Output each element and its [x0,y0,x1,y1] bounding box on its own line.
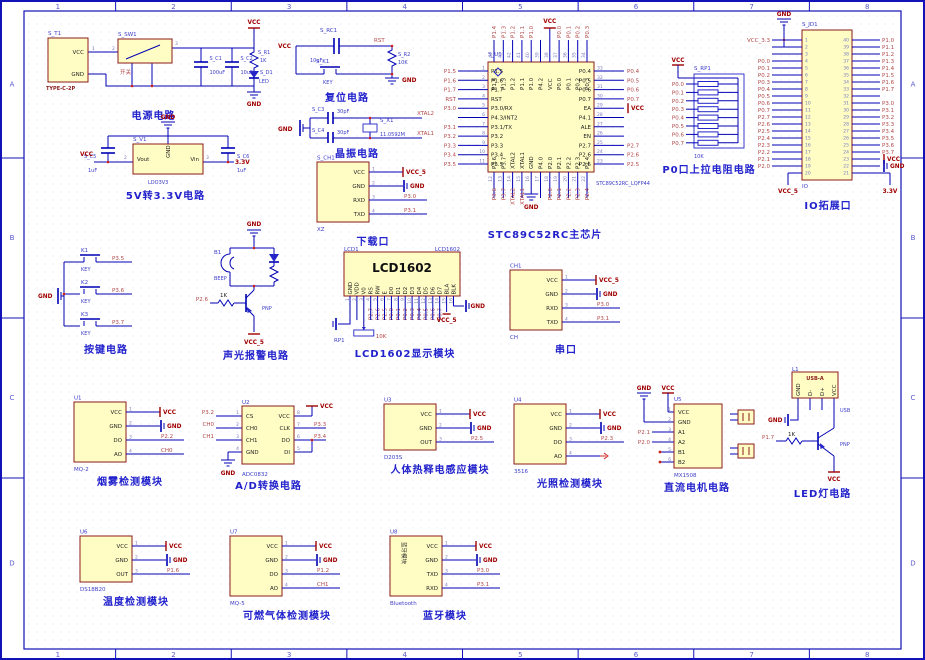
power-net-label: VCC [479,544,492,550]
pin-number: 27 [597,121,603,127]
net-label: P2.7 [758,115,771,121]
net-label: P1.5 [882,73,895,79]
pin-name: EN [583,134,591,140]
pin-name: XTAL2 [511,152,517,169]
net-label: P2.7 [627,143,640,149]
net-label: P2.1 [638,430,650,436]
pin-name: GND [549,426,562,432]
pin-number: 19 [553,176,559,182]
temp-svg: U6DS18B20VCC1VCCGND2GNDOUT3P1.6 [66,528,206,594]
module-pir-sensor: U3D203SVCC1VCCGND2GNDOUT3P2.5 人体热释电感应模块 [370,396,510,476]
net-label: CH0 [203,422,215,428]
pin-number: 4 [236,446,239,452]
designator: U3 [384,398,392,404]
net-label: P2.0 [548,188,554,201]
pin-number: 14 [435,298,441,304]
net-label: P0.2 [403,308,409,320]
pin-name: B1 [678,450,685,456]
pin-number: 23 [597,159,603,165]
gnd-label: GND [323,558,338,564]
pin-name: EA [584,106,591,112]
designator: K2 [81,280,88,286]
zone-label: 6 [634,651,639,659]
net-label: P1.1 [882,45,894,51]
pin-number: 1 [445,541,448,547]
net-label: P2.0 [638,440,651,446]
lcd-caption: LCD1602显示模块 [326,345,484,360]
vcc-label: VCC [662,386,675,392]
pin-name: GND [348,282,354,295]
net-label: P0.0 [389,308,395,321]
zone-label: 2 [171,3,175,11]
pin-number: 3 [565,303,568,309]
pin-name: DO [113,438,122,444]
power-net-label: VCC_5 [778,189,798,195]
pin-name: RXD [546,306,558,312]
gnd-label: GND [768,418,783,424]
crystal-body [363,124,377,132]
pin-number: 13 [805,122,811,128]
pin-name: RXD [353,198,365,204]
pin-name: GND [545,292,558,298]
module-bluetooth: U8Bluetooth蓝牙模块VCC1VCCGND2GNDTXD3P3.0RXD… [376,528,514,622]
pin-name: GND [115,558,128,564]
pin-name: D6 [431,286,437,294]
pin-name: P4.0 [539,156,545,169]
module-inner-label: 蓝牙模块 [400,542,408,565]
pin-number: 17 [805,150,811,156]
zone-label: 3 [287,3,291,11]
value-label: KEY [81,299,91,305]
net-label: P1.3 [882,59,895,65]
designator: S_K1 [316,59,329,65]
gas-svg: U7MQ-5VCC1VCCGND2GNDDO3P1.2AO4CH1 [216,528,356,608]
designator: L1 [792,367,799,373]
pin-number: 2 [445,555,448,561]
module-keys: GND K1 KEY P3.5 K2 KEY P3.6 K3 KEY P3.7 … [36,246,176,356]
pin-number: 39 [535,52,541,58]
net-label: P3.6 [882,143,895,149]
net-label: P3.0 [597,302,610,308]
pin-name: TXD [353,212,365,218]
net-label: P0.4 [627,69,640,75]
value-label: 1uF [88,168,97,174]
pin-number: 2 [124,155,127,161]
pin-number: 20 [805,171,811,177]
net-label: P2.5 [627,162,640,168]
pir-caption: 人体热释电感应模块 [370,461,510,476]
gnd-label: GND [402,78,417,84]
vcc-label: VCC [80,152,93,158]
net-label: XTAL1 [417,131,434,137]
pin-number: 3 [482,84,485,90]
resistor-body [698,115,718,120]
led-caption: LED灯电路 [760,485,885,500]
pin-name: AO [554,454,563,460]
motor-caption: 直流电机电路 [626,479,768,494]
pin-number: 11 [479,159,485,165]
pin-name: XTAL1 [520,152,526,169]
pin-number: 22 [581,176,587,182]
pin-name: DO [553,440,562,446]
designator: U2 [242,400,250,406]
module-adc: U2 ADC0832 CS CH0 CH1 GND 1 2 3 4 P3.2 C… [200,396,337,492]
pin-name: GND [419,426,432,432]
gnd-label: GND [173,558,188,564]
pin-number: 2 [112,46,115,52]
pin-number: 3 [175,41,178,47]
pin-name: P1.2 [511,78,517,90]
pin-number: 6 [805,73,808,79]
pin-number: 3 [206,155,209,161]
serial-svg: CH1CHVCC1VCC_5GND2GNDRXD3P3.0TXD4P3.1 [496,262,636,342]
designator: S_RC1 [320,28,337,34]
pin-number: 1 [129,407,132,413]
pin-name: P2.4 [585,156,591,169]
pin-number: 25 [597,140,603,146]
module-led-light: L1 USB-A GND D- D+ VCC USB GND 1K P1.7 P… [760,366,885,500]
pin-name: D5 [424,286,430,294]
designator: S_SW1 [118,32,137,38]
net-label: P0.1 [758,66,770,72]
pin-name: P2.1 [557,157,563,169]
net-label: P2.4 [758,136,771,142]
net-label: CH1 [203,434,214,440]
pin-number: 3 [668,427,671,433]
pin-name: P3.2 [491,134,503,140]
pin-number: 22 [843,164,849,170]
net-label: P0.5 [627,78,640,84]
value-label: 10uF [241,70,254,76]
pin-name: P2.7 [579,143,592,149]
pin-number: 7 [805,80,808,86]
net-label: P2.2 [758,150,770,156]
pin-number: 2 [439,423,442,429]
pin-name: VCC [279,414,291,420]
pin-number: 14 [507,176,513,182]
pin-number: 8 [297,410,300,416]
designator: S_R2 [398,52,410,58]
pin-name: AO [270,586,279,592]
pin-name: BLA [444,284,450,295]
pin-number: 15 [516,176,522,182]
value-label: 10K [694,154,704,160]
pin-number: 18 [805,157,811,163]
pin-number: 35 [843,73,849,79]
temp-caption: 温度检测模块 [66,593,206,608]
pin-name: GND [678,420,691,426]
power-net-label: GND [524,205,539,211]
net-label: P2.4 [585,188,591,201]
pin-name: P4.1 [579,116,591,122]
pin-name: P0.0 [557,77,563,90]
module-lcd1602: LCD1602LCD1LCD1602GND1VDD2V03RS4P2.7RW5P… [326,248,484,360]
designator: U4 [514,398,522,404]
pin-number: 2 [129,421,132,427]
pin-name: P3.7 [501,156,507,169]
pin-number: 4 [482,93,485,99]
net-label: CH1 [317,582,328,588]
net-label: P1.1 [520,26,526,38]
net-label: P0.4 [758,87,771,93]
pin-number: 3 [372,195,375,201]
net-label: P1.2 [511,26,517,38]
part-number: IO [802,184,809,190]
net-label: P3.6 [112,288,125,294]
pin-name: D- [808,390,814,396]
net-label: 10K [376,334,387,340]
pin-number: 24 [843,150,849,156]
pin-name: Vin [190,157,199,163]
designator: S_R1 [258,50,270,56]
alarm-caption: 声光报警电路 [190,347,322,362]
pin-name: VCC [832,384,838,396]
alarm-svg: GND B1 BEEP 1K P2.6 PNP VCC_5 [190,220,320,348]
net-label: P2.1 [758,157,770,163]
net-label: P2.6 [196,297,209,303]
net-label: P3.4 [882,129,895,135]
keys-svg: GND K1 KEY P3.5 K2 KEY P3.6 K3 KEY P3.7 [36,246,176,342]
net-label: P3.3 [314,422,327,428]
pin-number: 41 [516,52,522,58]
download-svg: S_CH1XZVCC1VCC_5GND2GNDRXD3P3.0TXD4P3.1 [303,154,443,234]
pin-number: 3 [359,298,365,301]
net-label: P2.3 [758,143,771,149]
net-label: P3.5 [112,256,125,262]
pin-name: RXD [426,586,438,592]
pin-number: 3 [805,52,808,58]
pin-number: 37 [553,52,559,58]
pin-number: 17 [535,176,541,182]
net-label: RST [445,97,456,103]
designator: S_RP1 [694,66,711,72]
pin-number: 1 [569,409,572,415]
pin-name: GND [246,450,259,456]
net-label: P3.2 [444,134,456,140]
module-alarm: GND B1 BEEP 1K P2.6 PNP VCC_5 声光报警电路 [190,220,322,362]
net-label: P2.5 [382,308,388,321]
download-caption: 下载口 [303,233,443,248]
module-light-sensor: U43516VCC1VCCGND2GNDDO3P2.3AO4 光照检测模块 [500,396,640,490]
pin-name: VCC [421,412,433,418]
pin-number: 7 [297,422,300,428]
net-label: P3.1 [477,582,489,588]
pin-number: 2 [482,75,485,81]
gnd-label: GND [777,12,792,18]
gnd-label: GND [477,426,492,432]
designator: K3 [81,312,89,318]
zone-label: 1 [56,651,60,659]
pin-number: 12 [805,115,811,121]
pin-name: D0 [389,286,395,294]
net-label: P3.0 [477,568,490,574]
pin-name: P0.1 [566,78,572,90]
designator: LCD1 [344,247,359,253]
pin-name: DO [281,438,290,444]
bt-svg: U8Bluetooth蓝牙模块VCC1VCCGND2GNDTXD3P3.0RXD… [376,528,516,608]
designator: S_JD1 [802,22,818,28]
pin-name: OUT [116,572,128,578]
pin-name: P0.3 [585,77,591,90]
part-label: USB-A [806,376,824,382]
zone-label: B [911,234,916,242]
pin-number: 15 [805,136,811,142]
pin-name: D+ [820,387,826,396]
pin-number: 36 [843,66,849,72]
pin-name: VCC [427,544,439,550]
net-label: P2.3 [601,436,614,442]
pnp-emitter-arrow [247,307,252,313]
pin-name: RS [369,287,375,295]
pin-name: P1.1 [520,78,526,90]
part-number: STC89C52RC_LQFP44 [596,181,650,187]
crystal-svg: GND S_C3 30pF S_C4 30pF S_X1 11.0592M XT… [276,104,436,146]
pin-number: 2 [569,423,572,429]
pin-name: D3 [410,286,416,294]
part-number: LDO3V3 [148,180,168,186]
pin-number: 3 [236,434,239,440]
power-net-label: VCC_5 [437,318,457,324]
value-label: 1K [260,58,267,64]
designator: S_C3 [312,107,324,113]
net-label: P3.4 [444,153,457,159]
lcd-title: LCD1602 [372,261,432,275]
resistor-body [698,98,718,103]
pin-number: 1 [372,167,375,173]
module-ldo: GND S_V1 Vout GND Vin 2 3 LDO3V3 S_C5 1u… [78,114,253,202]
net-label: P3.0 [444,106,457,112]
pin-number: 36 [562,52,568,58]
pin-number: 4 [805,59,808,65]
net-label: P3.2 [202,410,214,416]
pin-number: 4 [129,449,132,455]
net-label: VCC_3.3 [747,38,770,44]
pin-number: 1 [236,410,239,416]
net-label: P3.0 [404,194,417,200]
module-gas-sensor: U7MQ-5VCC1VCCGND2GNDDO3P1.2AO4CH1 可燃气体检测… [216,528,358,622]
pin-number: 40 [525,52,531,58]
designator: S_CH1 [317,156,335,162]
pin-name: BLK [451,284,457,295]
wires [88,28,261,98]
pin-number: 5 [805,66,808,72]
pin-name: E [382,291,388,295]
zone-label: A [10,81,15,89]
zone-label: 6 [634,3,639,11]
gas-caption: 可燃气体检测模块 [216,607,358,622]
zone-label: D [910,560,915,568]
vcc-label: VCC [248,20,261,26]
pin-number: 31 [843,101,849,107]
gnd-label: GND [607,426,622,432]
pin-number: 13 [497,176,503,182]
pin-name: D2 [403,287,409,295]
light-caption: 光照检测模块 [500,475,640,490]
net-label: P2.5 [471,436,484,442]
vcc-label: VCC [320,404,333,410]
pin-number: 3 [129,435,132,441]
pin-name: P1.3 [501,77,507,90]
pin-name: CH1 [246,438,257,444]
pin-number: 27 [843,129,849,135]
net-label: P3.2 [882,115,894,121]
power-net-label: VCC [473,412,486,418]
pin-name: P3.3 [491,143,504,149]
net-label: XTAL2 [511,188,517,205]
net-label: P1.5 [444,69,457,75]
pin-name: CS [246,414,254,420]
designator: U5 [674,397,682,403]
value-label: 1K [220,293,227,299]
pin-number: 43 [497,52,503,58]
pin-name: Vout [137,157,150,163]
net-label: P3.1 [882,108,894,114]
pin-number: 13 [428,298,434,304]
pin-number: 16 [805,143,811,149]
resistor-body [698,132,718,137]
net-label: P1.7 [882,87,895,93]
pot-wiper [362,327,366,330]
pin-number: 6 [668,457,671,463]
pin-name: P1.4 [492,77,498,90]
designator: CH1 [510,264,521,270]
zone-label: 8 [865,651,869,659]
net-label: P1.0 [529,25,535,38]
net-label: P0.2 [576,26,582,38]
pin-number: 38 [843,52,849,58]
pin-number: 2 [352,298,358,301]
net-label: P1.6 [444,78,457,84]
pin-number: 11 [805,108,811,114]
pin-name: P4.3/INT2 [491,116,518,122]
designator: S_C2 [241,56,253,62]
resistor-body [698,107,718,112]
zone-label: D [9,560,14,568]
power-net-label: VCC [603,412,616,418]
gnd-label: GND [247,222,262,228]
pin-name: CLK [279,426,290,432]
light-svg: U43516VCC1VCCGND2GNDDO3P2.3AO4 [500,396,640,476]
power-net-label: 3.3V [235,160,250,166]
net-label: P0.7 [758,108,771,114]
resistor-body [698,140,718,145]
net-label: XTAL1 [520,188,526,205]
pin-number: 5 [297,446,300,452]
lcd-svg: LCD1602LCD1LCD1602GND1VDD2V03RS4P2.7RW5P… [326,248,481,346]
wires [776,398,840,472]
pin-number: 33 [843,87,849,93]
resistor-body [698,82,718,87]
power-net-label: 3.3V [883,189,898,195]
net-label: P0.4 [672,116,685,122]
pin-name: RW [375,285,381,295]
pir-svg: U3D203SVCC1VCCGND2GNDOUT3P2.5 [370,396,510,462]
pin-name: D1 [396,287,402,295]
pin-number: 3 [439,437,442,443]
io-caption: IO拓展口 [744,197,912,212]
pin-name: TXD [546,320,558,326]
wires [210,230,279,334]
pin-number: 4 [372,209,375,215]
net-label: P2.7 [369,308,375,321]
pin-number: 20 [562,176,568,182]
gnd-label: GND [483,558,498,564]
pin-name: P3.0/RX [491,106,513,112]
pin-name: VCC [267,544,279,550]
pin-number: 19 [805,164,811,170]
pin-name: GND [109,424,122,430]
smoke-svg: U1MQ-2VCC1VCCGND2GNDDO3P2.2AO4CH0 [60,394,200,474]
